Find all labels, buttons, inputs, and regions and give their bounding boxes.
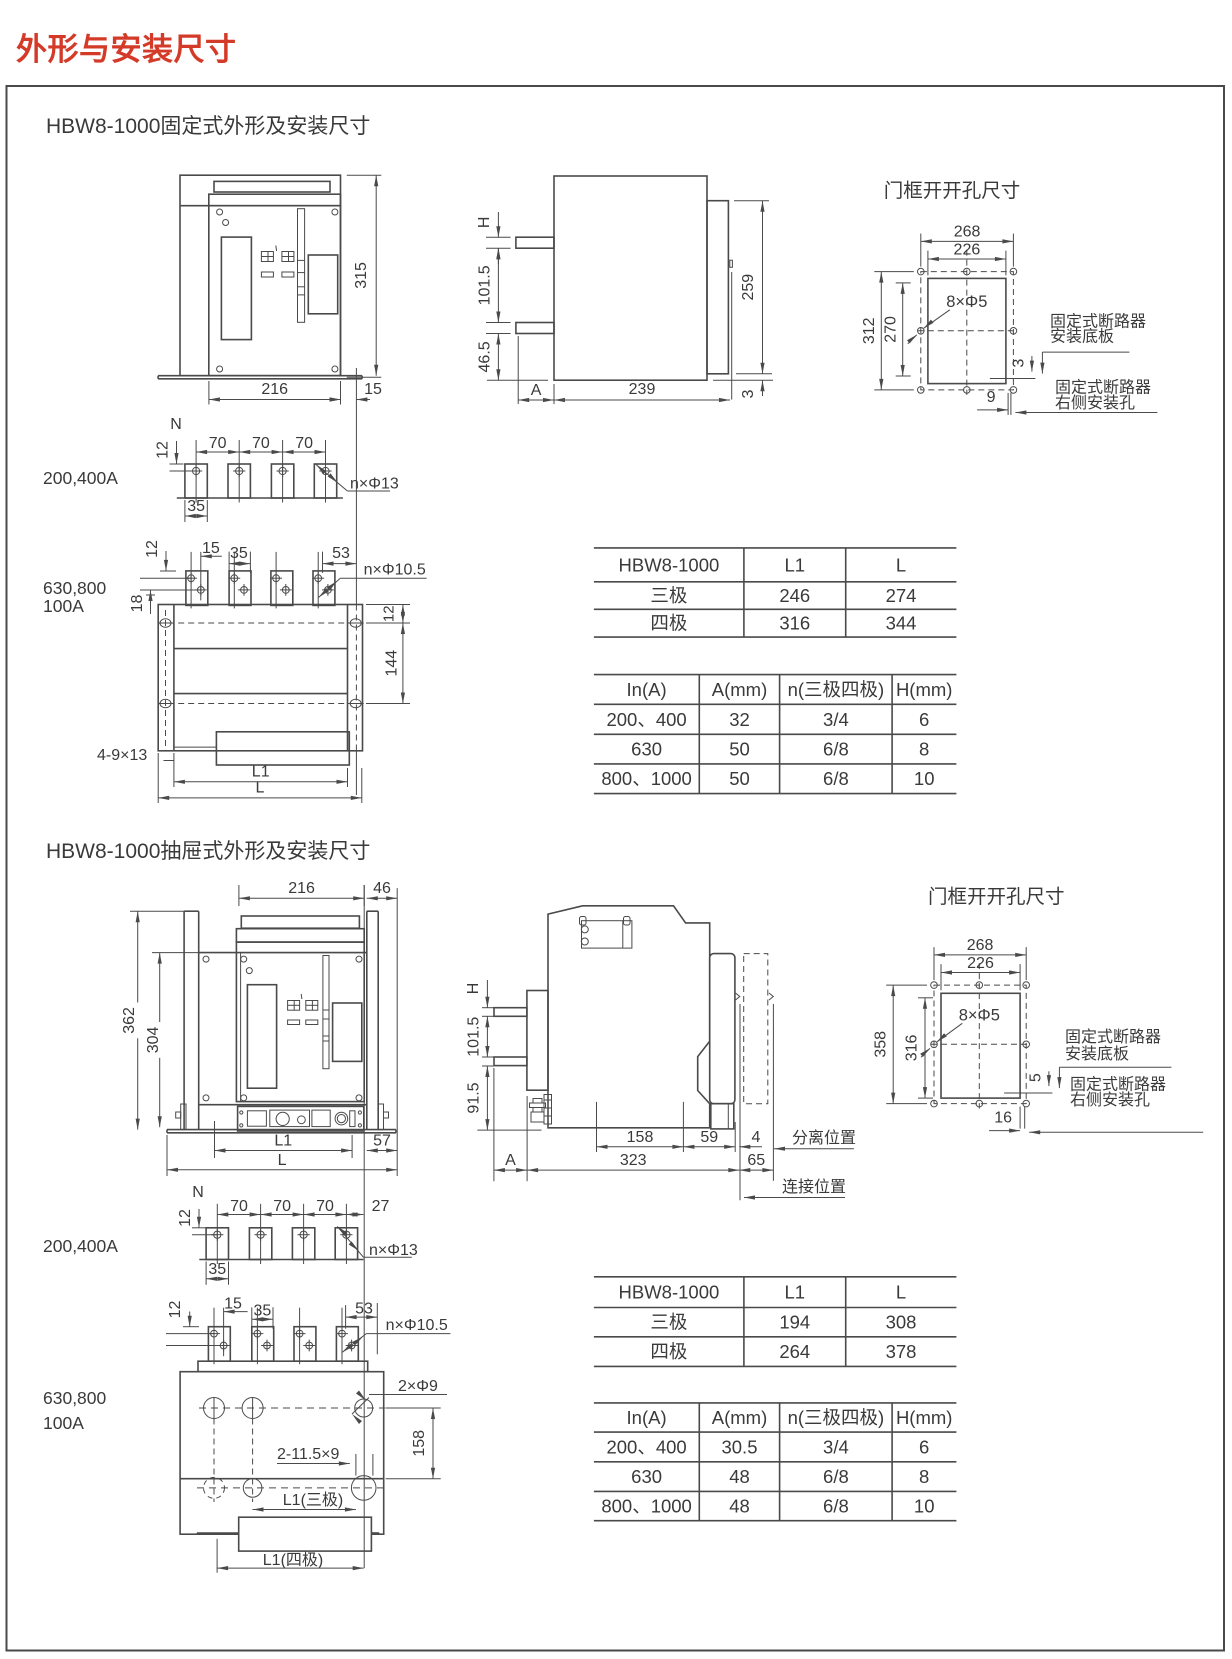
svg-text:H: H xyxy=(465,983,482,995)
svg-text:H(mm): H(mm) xyxy=(896,1407,953,1428)
svg-text:9: 9 xyxy=(987,389,996,406)
svg-text:91.5: 91.5 xyxy=(466,1082,483,1113)
svg-text:四极: 四极 xyxy=(650,1341,687,1362)
svg-text:59: 59 xyxy=(700,1129,718,1146)
svg-text:L1(四极): L1(四极) xyxy=(263,1551,323,1569)
svg-text:三极: 三极 xyxy=(650,1312,687,1333)
svg-text:6/8: 6/8 xyxy=(823,768,849,789)
svg-text:12: 12 xyxy=(167,1301,184,1319)
svg-text:65: 65 xyxy=(747,1152,765,1169)
svg-text:308: 308 xyxy=(886,1312,917,1333)
svg-text:362: 362 xyxy=(121,1007,138,1034)
svg-text:12: 12 xyxy=(144,540,161,558)
svg-text:312: 312 xyxy=(861,317,878,344)
svg-text:8×Φ5: 8×Φ5 xyxy=(959,1006,1000,1024)
svg-text:194: 194 xyxy=(779,1312,810,1333)
svg-text:15: 15 xyxy=(224,1296,242,1313)
svg-text:200,400A: 200,400A xyxy=(43,1236,118,1256)
svg-text:16: 16 xyxy=(994,1110,1012,1127)
svg-text:3/4: 3/4 xyxy=(823,709,849,730)
svg-text:101.5: 101.5 xyxy=(466,1017,483,1057)
svg-text:10: 10 xyxy=(914,1496,935,1517)
svg-text:46.5: 46.5 xyxy=(477,341,494,372)
svg-text:158: 158 xyxy=(411,1430,428,1457)
svg-text:5: 5 xyxy=(1027,1073,1044,1082)
svg-text:316: 316 xyxy=(779,613,810,634)
svg-text:2×Φ9: 2×Φ9 xyxy=(398,1378,438,1395)
svg-text:358: 358 xyxy=(873,1031,890,1058)
svg-text:连接位置: 连接位置 xyxy=(782,1178,846,1196)
svg-text:12: 12 xyxy=(177,1209,194,1227)
svg-text:n(三极四极): n(三极四极) xyxy=(788,679,885,700)
svg-text:L: L xyxy=(896,1282,906,1303)
svg-text:4-9×13: 4-9×13 xyxy=(97,747,147,764)
svg-text:304: 304 xyxy=(145,1026,162,1053)
svg-text:316: 316 xyxy=(904,1034,921,1061)
svg-text:HBW8-1000: HBW8-1000 xyxy=(619,554,720,575)
svg-text:三极: 三极 xyxy=(650,585,687,606)
svg-text:323: 323 xyxy=(620,1152,647,1169)
svg-text:2-11.5×9: 2-11.5×9 xyxy=(277,1446,340,1463)
svg-text:70: 70 xyxy=(230,1198,248,1215)
svg-text:50: 50 xyxy=(729,739,750,760)
svg-text:200,400A: 200,400A xyxy=(43,468,118,488)
svg-text:216: 216 xyxy=(288,880,315,897)
svg-text:46: 46 xyxy=(373,880,391,897)
svg-text:226: 226 xyxy=(954,242,981,259)
svg-text:48: 48 xyxy=(729,1496,750,1517)
svg-text:630,800: 630,800 xyxy=(43,1388,107,1408)
svg-text:A(mm): A(mm) xyxy=(712,1407,767,1428)
svg-text:In(A): In(A) xyxy=(627,679,667,700)
svg-text:50: 50 xyxy=(729,768,750,789)
svg-text:n×Φ10.5: n×Φ10.5 xyxy=(386,1317,448,1334)
svg-text:固定式断路器: 固定式断路器 xyxy=(1070,1076,1166,1094)
svg-text:200、400: 200、400 xyxy=(606,1436,686,1457)
svg-text:8: 8 xyxy=(919,739,929,760)
svg-text:70: 70 xyxy=(209,435,227,452)
svg-text:144: 144 xyxy=(384,650,401,677)
svg-text:四极: 四极 xyxy=(650,613,687,634)
svg-text:L1: L1 xyxy=(785,1282,806,1303)
svg-text:L: L xyxy=(896,554,906,575)
svg-text:32: 32 xyxy=(729,709,750,730)
svg-text:268: 268 xyxy=(954,224,981,241)
svg-text:12: 12 xyxy=(381,605,398,622)
svg-text:3: 3 xyxy=(740,389,757,398)
svg-text:In(A): In(A) xyxy=(627,1407,667,1428)
svg-text:门框开开孔尺寸: 门框开开孔尺寸 xyxy=(928,886,1065,908)
svg-text:L1(三极): L1(三极) xyxy=(283,1491,343,1509)
svg-text:4: 4 xyxy=(752,1129,761,1146)
svg-text:安装底板: 安装底板 xyxy=(1050,328,1114,346)
svg-text:259: 259 xyxy=(740,274,757,301)
svg-text:6/8: 6/8 xyxy=(823,1466,849,1487)
svg-text:N: N xyxy=(192,1184,204,1201)
svg-text:53: 53 xyxy=(332,545,350,562)
svg-text:L: L xyxy=(256,780,265,797)
svg-text:246: 246 xyxy=(779,585,810,606)
svg-text:239: 239 xyxy=(629,381,656,398)
svg-text:70: 70 xyxy=(273,1198,291,1215)
svg-text:35: 35 xyxy=(208,1261,226,1278)
svg-text:30.5: 30.5 xyxy=(721,1436,757,1457)
svg-text:268: 268 xyxy=(967,937,994,954)
svg-text:H(mm): H(mm) xyxy=(896,679,953,700)
svg-text:门框开开孔尺寸: 门框开开孔尺寸 xyxy=(884,180,1021,202)
svg-text:800、1000: 800、1000 xyxy=(601,1496,692,1517)
svg-text:378: 378 xyxy=(886,1341,917,1362)
svg-text:6/8: 6/8 xyxy=(823,1496,849,1517)
svg-text:630,800: 630,800 xyxy=(43,578,107,598)
svg-text:35: 35 xyxy=(254,1302,272,1319)
svg-text:274: 274 xyxy=(886,585,917,606)
svg-text:27: 27 xyxy=(372,1198,390,1215)
svg-text:226: 226 xyxy=(967,955,994,972)
svg-text:200、400: 200、400 xyxy=(606,709,686,730)
svg-text:35: 35 xyxy=(187,498,205,515)
svg-text:L: L xyxy=(278,1152,287,1169)
svg-text:100A: 100A xyxy=(43,596,84,616)
svg-text:12: 12 xyxy=(155,441,172,459)
svg-text:A: A xyxy=(531,382,542,399)
svg-text:101.5: 101.5 xyxy=(477,265,494,305)
svg-text:n×Φ13: n×Φ13 xyxy=(350,476,399,493)
svg-text:安装底板: 安装底板 xyxy=(1065,1045,1129,1063)
svg-text:H: H xyxy=(476,217,493,229)
svg-text:216: 216 xyxy=(261,381,288,398)
svg-text:N: N xyxy=(170,416,182,433)
svg-text:固定式断路器: 固定式断路器 xyxy=(1065,1028,1161,1046)
svg-text:A(mm): A(mm) xyxy=(712,679,767,700)
svg-text:70: 70 xyxy=(295,435,313,452)
svg-text:6: 6 xyxy=(919,709,929,730)
svg-text:分离位置: 分离位置 xyxy=(792,1129,856,1147)
svg-text:n×Φ10.5: n×Φ10.5 xyxy=(364,562,426,579)
svg-text:L1: L1 xyxy=(252,764,270,781)
svg-text:630: 630 xyxy=(631,1466,662,1487)
svg-text:70: 70 xyxy=(316,1198,334,1215)
svg-text:n×Φ13: n×Φ13 xyxy=(369,1242,418,1259)
svg-text:264: 264 xyxy=(779,1341,810,1362)
svg-text:HBW8-1000抽屉式外形及安装尺寸: HBW8-1000抽屉式外形及安装尺寸 xyxy=(46,840,370,863)
svg-text:8: 8 xyxy=(919,1466,929,1487)
svg-text:800、1000: 800、1000 xyxy=(601,768,692,789)
svg-text:10: 10 xyxy=(914,768,935,789)
svg-text:HBW8-1000固定式外形及安装尺寸: HBW8-1000固定式外形及安装尺寸 xyxy=(46,115,370,138)
svg-text:344: 344 xyxy=(886,613,917,634)
svg-text:158: 158 xyxy=(627,1129,654,1146)
svg-text:630: 630 xyxy=(631,739,662,760)
svg-text:6/8: 6/8 xyxy=(823,739,849,760)
svg-text:100A: 100A xyxy=(43,1413,84,1433)
svg-text:6: 6 xyxy=(919,1436,929,1457)
svg-text:270: 270 xyxy=(883,316,900,343)
svg-text:18: 18 xyxy=(129,595,146,613)
svg-text:315: 315 xyxy=(353,262,370,289)
svg-text:15: 15 xyxy=(202,540,220,557)
svg-text:A: A xyxy=(505,1152,516,1169)
svg-text:3/4: 3/4 xyxy=(823,1436,849,1457)
svg-text:L1: L1 xyxy=(785,554,806,575)
svg-text:固定式断路器: 固定式断路器 xyxy=(1055,378,1151,396)
svg-text:70: 70 xyxy=(252,435,270,452)
svg-text:57: 57 xyxy=(373,1133,391,1150)
svg-text:15: 15 xyxy=(364,381,382,398)
svg-text:35: 35 xyxy=(230,545,248,562)
svg-text:3: 3 xyxy=(1010,359,1027,368)
svg-text:48: 48 xyxy=(729,1466,750,1487)
svg-text:右侧安装孔: 右侧安装孔 xyxy=(1055,394,1135,412)
svg-text:右侧安装孔: 右侧安装孔 xyxy=(1070,1091,1150,1109)
svg-text:L1: L1 xyxy=(274,1133,292,1150)
svg-text:HBW8-1000: HBW8-1000 xyxy=(619,1282,720,1303)
svg-text:8×Φ5: 8×Φ5 xyxy=(946,293,987,311)
svg-text:n(三极四极): n(三极四极) xyxy=(788,1407,885,1428)
